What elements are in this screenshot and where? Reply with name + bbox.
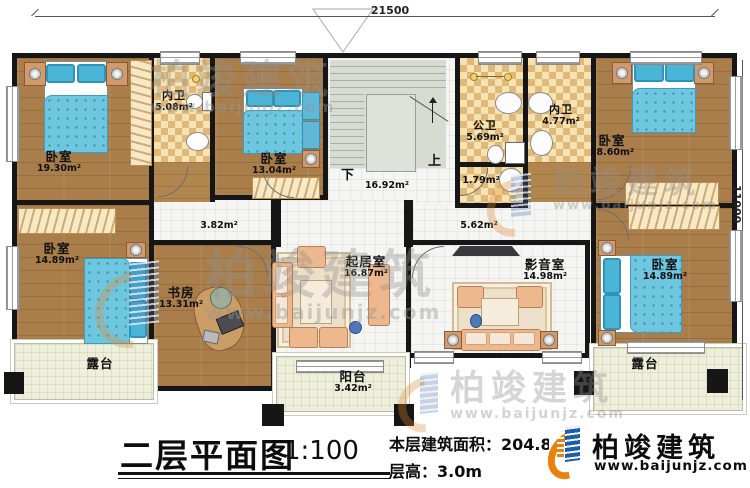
nightstand	[598, 330, 616, 346]
sofa-cushion	[275, 266, 288, 294]
coffee-table	[481, 298, 519, 326]
company-website: www.baijunjz.com	[594, 458, 748, 474]
blanket	[243, 110, 303, 154]
room-label: 阳台3.42m²	[323, 370, 383, 395]
room-label: 5.62m²	[449, 221, 509, 232]
armchair	[319, 327, 348, 348]
room-label: 书房13.31m²	[149, 286, 213, 311]
window	[478, 51, 522, 65]
armchair	[297, 246, 326, 268]
window	[6, 246, 20, 310]
title-underline-thin	[118, 478, 390, 479]
pier	[574, 371, 594, 395]
floor-area-text: 本层建筑面积：204.8m²	[389, 431, 575, 455]
armchair	[516, 286, 543, 308]
room-label: 起居室16.87m²	[331, 255, 401, 280]
dim-right-value: 11000	[730, 185, 743, 223]
room-label: 露台	[70, 357, 130, 371]
window	[240, 51, 296, 65]
room-name: 卧室	[21, 150, 97, 164]
closet	[18, 208, 116, 234]
room-label: 16.92m²	[357, 181, 417, 192]
pier	[707, 369, 728, 393]
coffee-table	[300, 280, 332, 324]
room-label: 卧室14.89m²	[629, 258, 701, 283]
stair-down-label: 下	[341, 164, 354, 183]
armchair	[457, 286, 484, 308]
room-label: 露台	[615, 357, 675, 371]
room-label: 内卫4.77m²	[531, 104, 591, 128]
nightstand	[106, 62, 128, 86]
pillow	[665, 63, 695, 82]
sofa-cushion	[465, 332, 487, 345]
blanket	[632, 88, 696, 133]
pier	[262, 404, 284, 426]
room-label: 卧室13.04m²	[239, 152, 309, 177]
ceiling-light	[470, 73, 478, 81]
cabinet	[302, 92, 320, 120]
wall-stub	[404, 200, 413, 247]
armchair	[289, 327, 318, 348]
window	[6, 86, 20, 162]
wall-stub	[272, 200, 281, 247]
nightstand	[598, 240, 616, 256]
pillow	[603, 258, 621, 294]
window	[414, 351, 454, 364]
window	[630, 51, 702, 65]
pedestal-sink	[530, 130, 553, 156]
decor-plant	[349, 321, 362, 334]
pillow	[603, 294, 621, 330]
room-label: 3.82m²	[189, 221, 249, 232]
washing-machine	[505, 142, 525, 164]
nightstand	[612, 62, 632, 84]
figure	[470, 314, 482, 328]
pillow	[246, 90, 274, 107]
pillow	[77, 64, 106, 83]
sofa-cushion	[275, 296, 288, 324]
closet	[625, 182, 719, 205]
room-label: 卧室18.60m²	[577, 134, 647, 159]
company-logo-tower	[565, 426, 580, 462]
ceiling-light	[504, 73, 512, 81]
sofa-cushion	[489, 332, 511, 345]
company-logo-icon	[549, 423, 589, 475]
cabinet	[302, 121, 320, 149]
plan-scale: 1:100	[284, 436, 359, 466]
toilet	[487, 145, 504, 164]
window	[729, 230, 743, 302]
side-table	[540, 331, 558, 349]
watermark-logo-tower	[420, 372, 438, 414]
stair-arrow-head	[429, 97, 437, 103]
floor-plan: 卧室19.30m² 内卫5.08m² 卧室13.04m² 16.92m² 公卫5…	[0, 0, 750, 488]
window	[160, 51, 200, 65]
pillow	[46, 64, 75, 83]
title-underline	[118, 472, 390, 475]
room-label: 卧室19.30m²	[21, 150, 97, 175]
dim-tick	[711, 9, 719, 17]
sink	[186, 132, 209, 151]
stair-up-label: 上	[428, 150, 441, 169]
room-label: 公卫5.69m²	[455, 120, 515, 144]
side-table	[444, 331, 462, 349]
closet	[628, 206, 720, 230]
room-label: 1.79m²	[452, 176, 510, 187]
blanket	[84, 258, 130, 344]
window	[729, 76, 743, 150]
window	[542, 351, 582, 364]
nightstand	[694, 62, 714, 84]
vestibule-right	[523, 162, 596, 202]
room-label: 内卫5.08m²	[144, 90, 204, 114]
company-logo-tower-small	[557, 437, 564, 457]
pier	[394, 404, 414, 426]
room-area: 19.30m²	[21, 164, 97, 175]
pillow	[129, 300, 147, 338]
nightstand	[126, 242, 146, 258]
terrace-left-floor	[14, 343, 154, 400]
stair-flight-left	[330, 60, 364, 168]
plan-title: 二层平面图	[120, 429, 295, 477]
window	[536, 51, 580, 65]
sofa-cushion	[513, 332, 535, 345]
pillow	[634, 63, 664, 82]
sink	[495, 92, 522, 114]
blanket	[44, 95, 108, 153]
desk-chair	[210, 287, 232, 309]
room-label: 影音室14.98m²	[510, 258, 580, 283]
light-bar	[476, 76, 504, 77]
room-label: 卧室14.89m²	[19, 242, 95, 267]
dim-top-value: 21500	[360, 4, 420, 17]
floor-height-text: 层高：3.0m	[389, 458, 482, 482]
window	[627, 341, 705, 354]
pillow	[129, 262, 147, 300]
ceiling-light	[192, 75, 200, 83]
nightstand	[24, 62, 46, 86]
pillow	[273, 90, 301, 107]
tv	[452, 246, 520, 256]
stair-landing	[366, 94, 416, 172]
pier	[4, 372, 24, 394]
